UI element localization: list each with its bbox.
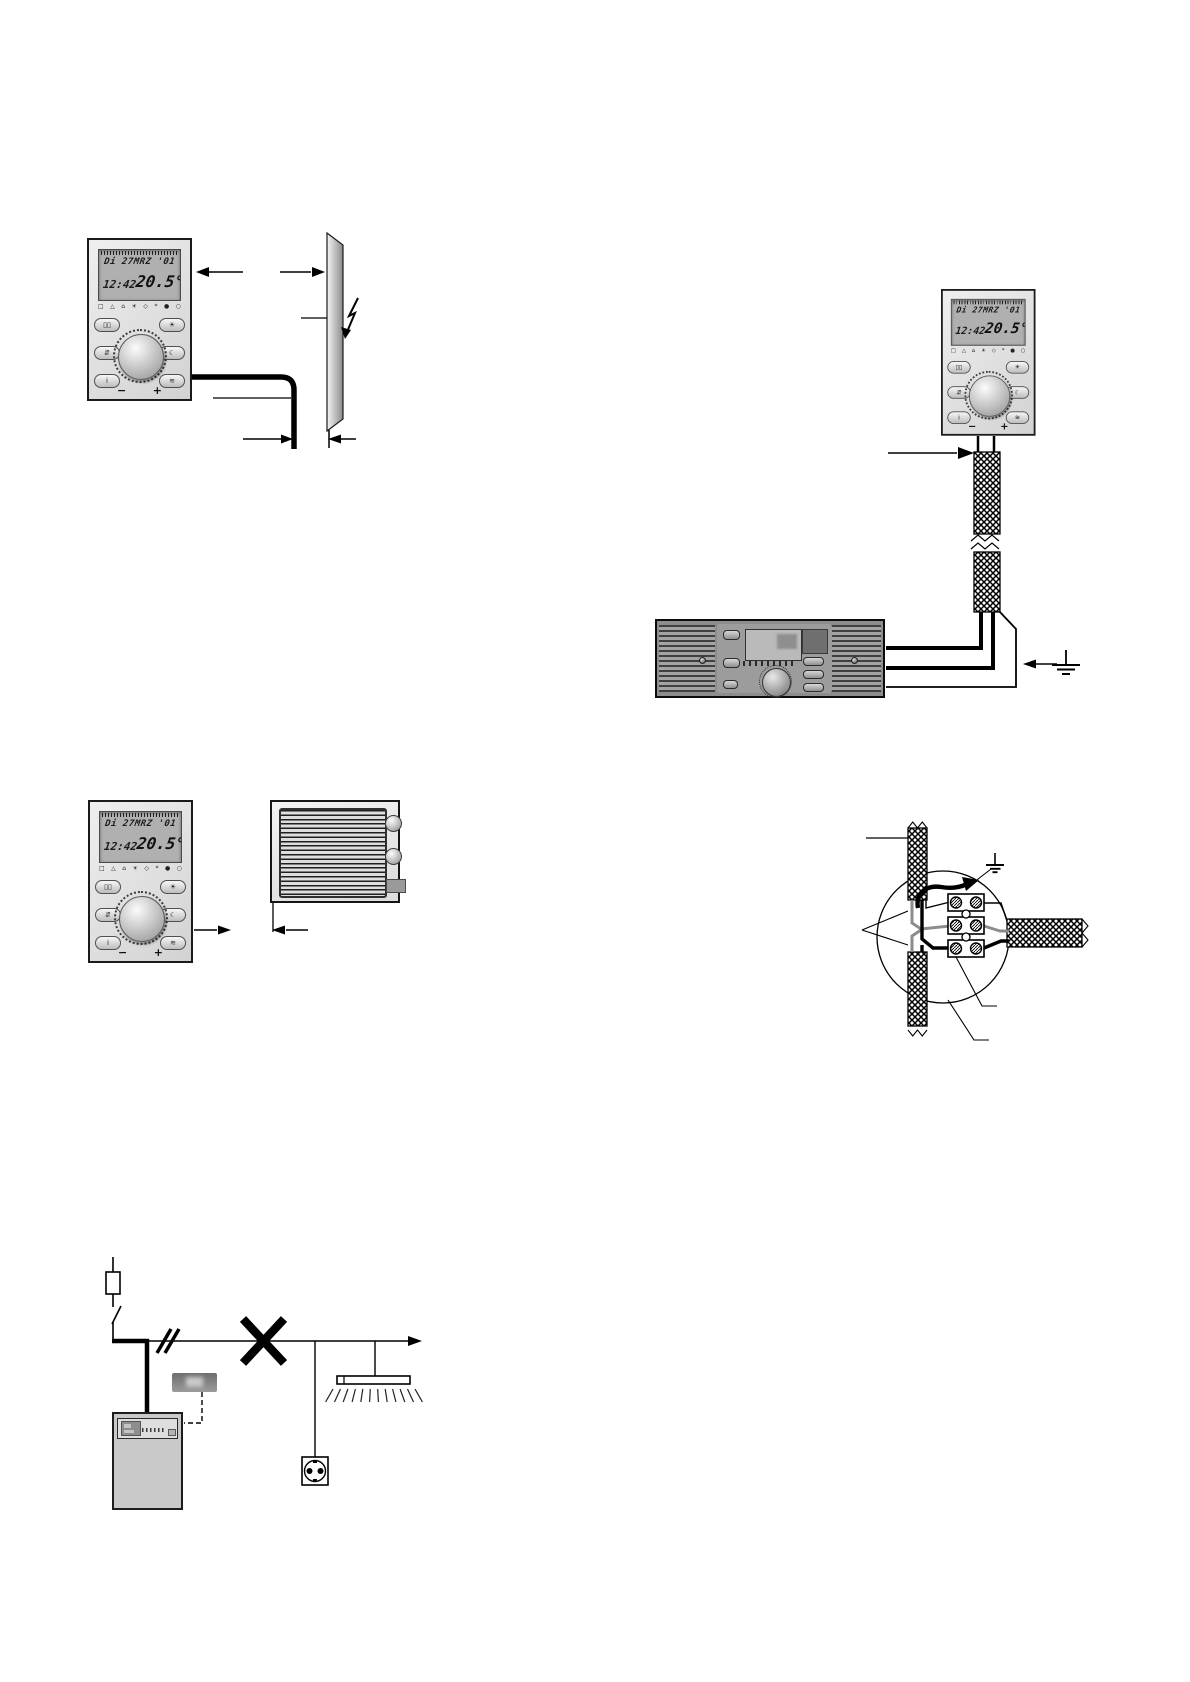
- lcd-timescale: [101, 251, 178, 255]
- status-icon: ○: [176, 304, 181, 310]
- dial-plus-label: +: [153, 384, 162, 397]
- status-icon: *: [155, 866, 158, 872]
- control-area: ▯▯ ⇵ i ☀ ☾ ≋ − +: [90, 876, 191, 961]
- terminal-screw-icon: [951, 943, 962, 954]
- ground-leader-line: [973, 869, 991, 883]
- lcd-date: Di 27MRZ '01: [951, 306, 1025, 316]
- rotary-dial: [118, 334, 164, 380]
- lamp-icon: [326, 1376, 423, 1402]
- boiler-panel-display: [121, 1421, 141, 1436]
- status-icon: ◇: [144, 866, 149, 872]
- status-icon: ◇: [992, 348, 996, 353]
- status-icon: *: [154, 304, 157, 310]
- lcd-temperature: 20.5°: [984, 320, 1026, 337]
- shielded-cable-top: [908, 828, 927, 900]
- status-icon: ☀: [981, 348, 986, 353]
- lcd-time: 12:42: [102, 278, 137, 291]
- status-icon: △: [111, 866, 116, 872]
- heater-knob: [385, 848, 402, 865]
- junction-box-outline: [877, 871, 1009, 1003]
- room-controller: Di 27MRZ '01 12:42 20.5° □ △ ⌂ ☀ ◇ * ● ○…: [87, 238, 192, 401]
- terminal-screw-icon: [951, 897, 962, 908]
- timer-button: ▯▯: [95, 880, 121, 894]
- lcd-date: Di 27MRZ '01: [98, 257, 181, 268]
- dim-arrow-right-icon: [218, 926, 231, 935]
- boiler-appliance: [112, 1412, 183, 1510]
- status-icon: *: [1002, 348, 1005, 353]
- status-icon: ●: [164, 304, 169, 310]
- cable-break-mark: [971, 543, 999, 549]
- not-allowed-cross-icon: [243, 1319, 284, 1363]
- status-icon: △: [110, 304, 115, 310]
- boiler-lcd-display: [745, 629, 802, 661]
- status-icon: ☀: [132, 304, 137, 310]
- boiler-button: [803, 683, 824, 692]
- lcd-display: Di 27MRZ '01 12:42 20.5°: [951, 299, 1026, 346]
- status-icon: □: [99, 866, 105, 872]
- dial-plus-label: +: [154, 946, 163, 959]
- day-temp-button: ☀: [160, 880, 186, 894]
- louver-grille: [659, 625, 715, 692]
- status-icon-row: □ △ ⌂ ☀ ◇ * ● ○: [951, 347, 1026, 355]
- boiler-front-panel: [117, 1418, 178, 1439]
- status-icon: □: [98, 304, 104, 310]
- status-icon: ☀: [133, 866, 138, 872]
- rotary-dial: [968, 375, 1009, 416]
- status-icon: ○: [177, 866, 182, 872]
- dial-minus-label: −: [968, 420, 976, 432]
- socket-icon: [302, 1457, 328, 1485]
- heater-switch: [386, 879, 406, 893]
- callout-leader: [948, 1000, 989, 1040]
- status-icon: ◇: [143, 304, 148, 310]
- lcd-time: 12:42: [955, 325, 986, 337]
- day-temp-button: ☀: [159, 318, 185, 332]
- dial-plus-label: +: [1000, 420, 1008, 432]
- dim-arrow-left-icon: [272, 926, 285, 935]
- shielded-cable-upper: [974, 452, 1000, 534]
- heat-source-clearance-diagram: [194, 903, 308, 935]
- controller-cable: [192, 377, 294, 449]
- cable-cut-mark: [908, 1030, 927, 1036]
- status-icon: ⌂: [122, 866, 126, 872]
- status-icon: ⌂: [121, 304, 125, 310]
- cable-pointer-arrow-icon: [958, 447, 974, 459]
- status-icon: □: [951, 348, 956, 353]
- wall-mounting-diagram: [192, 233, 358, 449]
- day-temp-button: ☀: [1006, 361, 1029, 374]
- lightning-arrowhead: [341, 327, 351, 339]
- callout-leader: [862, 911, 908, 930]
- lcd-time: 12:42: [103, 840, 138, 853]
- callout-leader: [956, 957, 997, 1006]
- timer-button: ▯▯: [94, 318, 120, 332]
- heater-knob: [385, 815, 402, 832]
- hot-water-button: ≋: [160, 936, 186, 950]
- lcd-timescale: [954, 301, 1023, 305]
- status-icon: ●: [165, 866, 170, 872]
- jumper-wire: [926, 900, 950, 908]
- lcd-display: Di 27MRZ '01 12:42 20.5°: [99, 811, 182, 863]
- boiler-button: [723, 680, 738, 689]
- break-mark: [157, 1329, 171, 1353]
- lcd-date: Di 27MRZ '01: [99, 819, 182, 830]
- junction-box-diagram: [862, 822, 1088, 1040]
- lcd-timescale: [102, 813, 179, 817]
- black-wire: [984, 941, 1009, 948]
- black-wire: [922, 900, 950, 948]
- terminal-screw-icon: [971, 920, 982, 931]
- boiler-panel-button: [168, 1429, 176, 1436]
- terminal-screw-icon: [951, 920, 962, 931]
- dim-arrow-right-icon: [281, 435, 293, 444]
- hot-water-button: ≋: [159, 374, 185, 388]
- boiler-display-cover: [802, 629, 828, 654]
- terminal-screw-icon: [971, 897, 982, 908]
- lcd-temperature: 20.5°: [136, 834, 182, 853]
- room-controller: Di 27MRZ '01 12:42 20.5° □ △ ⌂ ☀ ◇ * ● ○…: [941, 289, 1036, 436]
- shielded-cable-bottom: [908, 952, 927, 1026]
- gray-wire: [912, 930, 921, 952]
- break-mark: [165, 1329, 179, 1353]
- lcd-temperature: 20.5°: [135, 272, 181, 291]
- remote-dashed-link: [184, 1392, 202, 1423]
- jumper-wire: [984, 903, 1007, 921]
- lcd-display: Di 27MRZ '01 12:42 20.5°: [98, 249, 181, 301]
- status-icon: ●: [1010, 348, 1015, 353]
- control-area: ▯▯ ⇵ i ☀ ☾ ≋ − +: [89, 314, 190, 399]
- timer-button: ▯▯: [947, 361, 970, 374]
- status-icon-row: □ △ ⌂ ☀ ◇ * ● ○: [99, 864, 182, 873]
- dial-minus-label: −: [118, 946, 127, 959]
- wall: [327, 233, 343, 431]
- shielded-cable-lower: [974, 552, 1000, 612]
- shield-route-arrow: [918, 884, 967, 908]
- ground-icon: [986, 853, 1004, 872]
- conductor-wire-1: [886, 612, 981, 648]
- dial-minus-label: −: [117, 384, 126, 397]
- cable-cut-mark: [908, 822, 927, 828]
- status-icon-row: □ △ ⌂ ☀ ◇ * ● ○: [98, 302, 181, 311]
- boiler-button: [723, 630, 740, 640]
- rotary-dial: [119, 896, 165, 942]
- callout-leader: [862, 930, 908, 945]
- shielded-cable-right: [1007, 919, 1082, 947]
- terminal-screw-icon: [971, 943, 982, 954]
- screw-icon: [699, 657, 706, 664]
- cable-cut-mark: [1082, 919, 1088, 947]
- terminal-block: [948, 894, 984, 957]
- manual-page: Di 27MRZ '01 12:42 20.5° □ △ ⌂ ☀ ◇ * ● ○…: [0, 0, 1190, 1682]
- ground-icon: [1052, 650, 1080, 674]
- boiler-panel-icons: [142, 1428, 164, 1432]
- fuse-icon: [106, 1272, 120, 1294]
- shield-route-arrowhead-icon: [962, 877, 979, 891]
- heater-grille: [279, 808, 387, 898]
- line-arrowhead-icon: [408, 1336, 422, 1346]
- shielded-cable-diagram: [886, 436, 1080, 687]
- shield-drain-wire: [886, 611, 1016, 687]
- conductor-wire-2: [886, 612, 993, 668]
- boiler-rotary-dial: [762, 668, 791, 697]
- status-icon: △: [962, 348, 966, 353]
- arrow-right-icon: [312, 267, 325, 277]
- room-controller: Di 27MRZ '01 12:42 20.5° □ △ ⌂ ☀ ◇ * ● ○…: [88, 800, 193, 963]
- cable-break-mark: [971, 535, 999, 541]
- status-icon: ○: [1021, 348, 1026, 353]
- boiler-button: [803, 670, 824, 679]
- screw-icon: [851, 657, 858, 664]
- boiler-control-unit: [655, 619, 885, 698]
- boiler-button: [803, 657, 824, 666]
- control-area: ▯▯ ⇵ i ☀ ☾ ≋ − +: [943, 357, 1034, 434]
- boiler-button: [723, 658, 740, 668]
- ground-arrow-icon: [1023, 660, 1036, 669]
- switch-icon: [112, 1306, 121, 1324]
- status-icon: ⌂: [972, 348, 975, 353]
- lightning-icon: [347, 298, 358, 332]
- hot-water-button: ≋: [1006, 411, 1029, 424]
- gray-wire: [912, 900, 950, 929]
- boiler-status-icon-row: [743, 661, 793, 666]
- heat-source-appliance: [270, 800, 400, 903]
- remote-controller-photo: [172, 1373, 217, 1392]
- arrow-left-icon: [196, 267, 209, 277]
- boiler-control-panel: [717, 624, 832, 693]
- dim-arrow-left-icon: [328, 435, 341, 444]
- gray-wire: [984, 926, 1009, 931]
